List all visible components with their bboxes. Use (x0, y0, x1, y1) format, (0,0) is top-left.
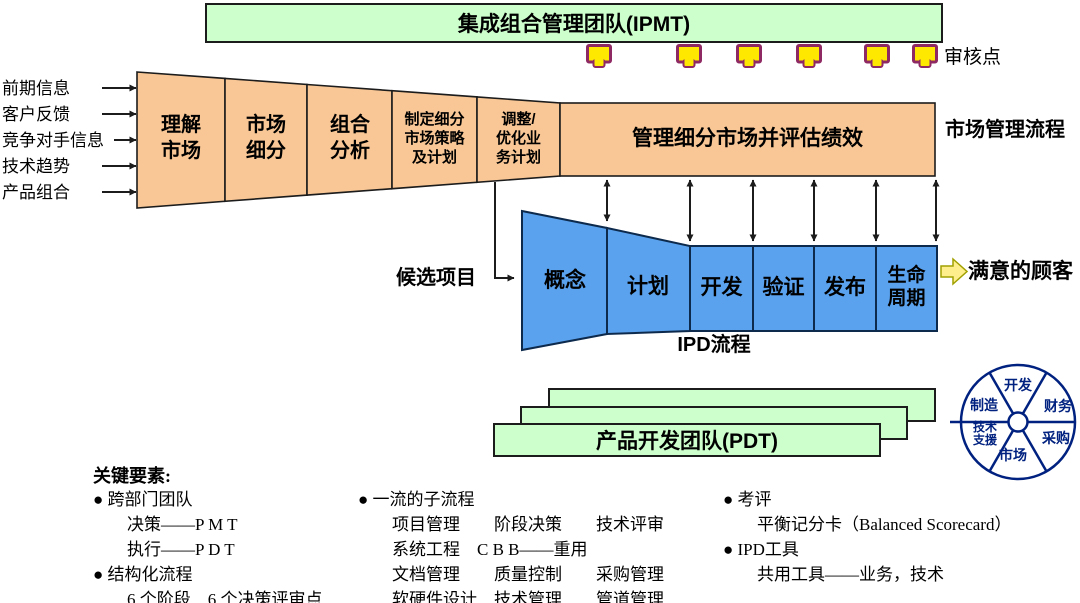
key-elements-col3: ● 考评 平衡记分卡（Balanced Scorecard）● IPD工具 共用… (723, 487, 1011, 587)
satisfied-customer-label: 满意的顾客 (968, 259, 1080, 285)
text-line: 平衡记分卡（Balanced Scorecard） (723, 512, 1011, 537)
market-process-label: 市场管理流程 (945, 117, 1080, 143)
text-line: 执行——P D T (93, 537, 323, 562)
wheel-sector-label: 开发 (994, 378, 1042, 393)
candidate-project-label: 候选项目 (388, 265, 484, 291)
text-line: 软硬件设计 技术管理 管道管理 (358, 587, 664, 603)
sync-arrows (607, 180, 936, 241)
text-line: 6 个阶段 6 个决策评审点 (93, 587, 323, 603)
text-line: ● 一流的子流程 (358, 487, 664, 512)
text-line: 系统工程 C B B——重用 (358, 537, 664, 562)
ipd-process-diagram: 集成组合管理团队(IPMT) 审核点 前期信息客户反馈竞争对手信息技术趋势产品组… (0, 0, 1080, 603)
review-point-icon (796, 44, 822, 69)
ipd-process-label: IPD流程 (644, 332, 784, 358)
text-line: 共用工具——业务，技术 (723, 562, 1011, 587)
market-inputs-list: 前期信息客户反馈竞争对手信息技术趋势产品组合 (2, 76, 104, 206)
text-line: 技术趋势 (2, 154, 104, 180)
wheel-hub (1009, 413, 1028, 432)
customer-arrow-icon (941, 259, 967, 284)
market-funnel-segment-label: 理解 市场 (139, 112, 223, 164)
manage-segment-label: 管理细分市场并评估绩效 (560, 126, 935, 152)
text-line: 项目管理 阶段决策 技术评审 (358, 512, 664, 537)
ipd-phase-label: 计划 (607, 274, 689, 300)
text-line: ● IPD工具 (723, 537, 1011, 562)
text-line: ● 结构化流程 (93, 562, 323, 587)
text-line: 客户反馈 (2, 102, 104, 128)
review-point-icon (912, 44, 938, 69)
review-point-icon (676, 44, 702, 69)
text-line: 决策——P M T (93, 512, 323, 537)
wheel-sector-label: 制造 (962, 398, 1006, 413)
text-line: ● 跨部门团队 (93, 487, 323, 512)
review-point-icon (736, 44, 762, 69)
ipd-phase-label: 生命 周期 (876, 264, 937, 310)
ipd-phase-label: 概念 (524, 268, 606, 294)
review-point-icon (586, 44, 612, 69)
text-line: 产品组合 (2, 180, 104, 206)
review-point-label: 审核点 (944, 45, 1024, 71)
wheel-sector-label: 采购 (1034, 431, 1078, 446)
ipd-phase-label: 验证 (753, 275, 814, 301)
ipmt-bar: 集成组合管理团队(IPMT) (205, 3, 943, 43)
market-funnel-segment-label: 制定细分 市场策略 及计划 (392, 110, 477, 167)
text-line: 文档管理 质量控制 采购管理 (358, 562, 664, 587)
market-funnel-segment-label: 市场 细分 (225, 112, 307, 164)
wheel-sector-label: 市场 (989, 448, 1037, 463)
market-funnel-segment-label: 调整/ 优化业 务计划 (477, 110, 560, 167)
market-funnel-segment-label: 组合 分析 (308, 112, 392, 164)
key-elements-col1: ● 跨部门团队 决策——P M T 执行——P D T● 结构化流程 6 个阶段… (93, 487, 323, 603)
pdt-bar-front: 产品开发团队(PDT) (493, 423, 881, 457)
input-arrows (102, 88, 136, 192)
ipd-phase-label: 发布 (814, 275, 876, 301)
review-point-icon (864, 44, 890, 69)
text-line: 前期信息 (2, 76, 104, 102)
key-elements-heading: 关键要素: (93, 462, 171, 488)
text-line: ● 考评 (723, 487, 1011, 512)
wheel-sector-label: 财务 (1036, 399, 1080, 414)
ipmt-bar-label: 集成组合管理团队(IPMT) (458, 8, 690, 38)
candidate-connector-arrow (495, 182, 514, 278)
text-line: 竞争对手信息 (2, 128, 104, 154)
wheel-sector-label: 技术 支援 (964, 421, 1006, 447)
pdt-bar-label: 产品开发团队(PDT) (596, 425, 778, 455)
ipd-phase-label: 开发 (690, 275, 753, 301)
key-elements-col2: ● 一流的子流程 项目管理 阶段决策 技术评审 系统工程 C B B——重用 文… (358, 487, 664, 603)
